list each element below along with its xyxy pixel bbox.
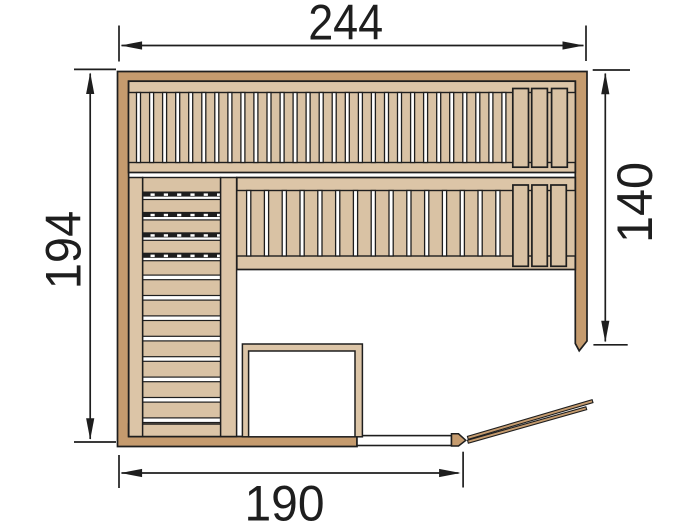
svg-text:190: 190 — [245, 476, 325, 525]
svg-text:244: 244 — [308, 0, 383, 51]
svg-text:140: 140 — [607, 162, 663, 243]
svg-text:194: 194 — [36, 211, 92, 290]
